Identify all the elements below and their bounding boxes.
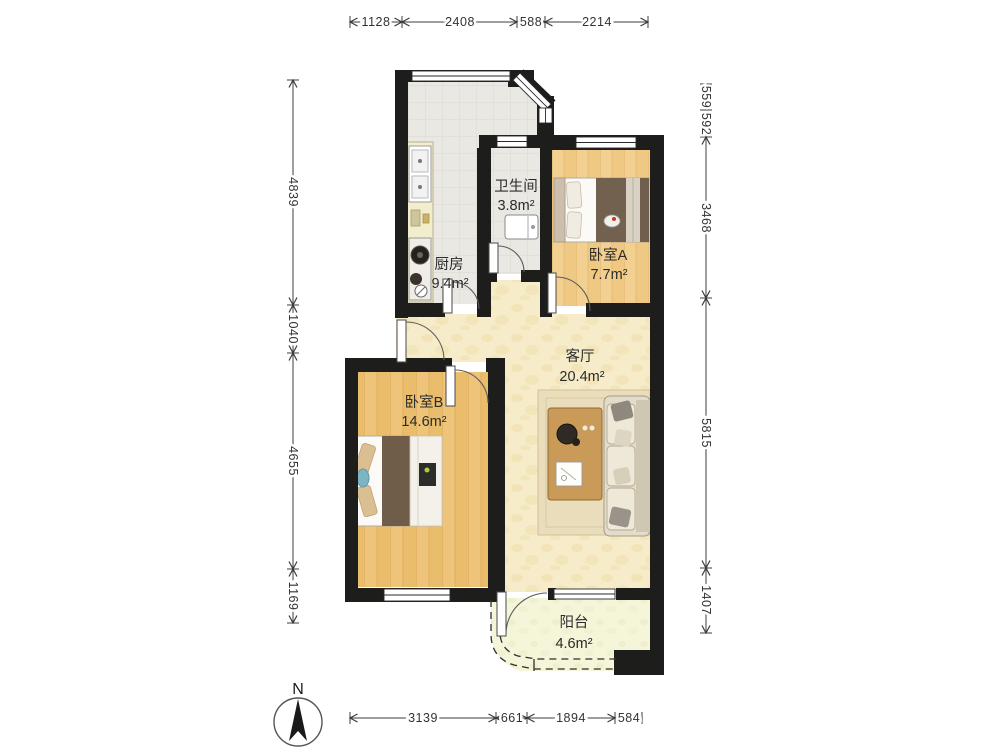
floor-plan-page: 卫生间 3.8m² 厨房 9.4m² 卧室A 7.7m² 客厅 20.4m² 卧… [0, 0, 1000, 750]
dim-top-3: 588 [520, 15, 542, 29]
living-label: 客厅 [566, 348, 595, 365]
dimensions-right: 559 592 3468 5815 1407 [699, 84, 713, 633]
dim-right-1: 559 [699, 86, 713, 108]
north-arrow-icon [289, 699, 307, 741]
dim-left-3: 4655 [286, 446, 300, 476]
dim-left-1: 4839 [286, 177, 300, 207]
bedroom-b-label: 卧室B [405, 394, 444, 411]
kitchen-label: 厨房 [435, 256, 464, 273]
north-label: N [292, 681, 304, 698]
dim-bottom-4: 584 [618, 711, 640, 725]
bedroom-a-label: 卧室A [589, 247, 628, 264]
bathroom-label: 卫生间 [494, 178, 538, 195]
dim-right-5: 1407 [699, 585, 713, 615]
dim-top-4: 2214 [582, 15, 612, 29]
dim-bottom-2: 661 [501, 711, 523, 725]
balcony-label: 阳台 [560, 614, 589, 631]
bedroom-b-bed [346, 436, 442, 526]
dimensions-bottom: 3139 661 1894 584 [350, 711, 642, 725]
bathroom-area: 3.8m² [497, 198, 534, 214]
dim-top-1: 1128 [362, 15, 391, 29]
bedroom-a-bed [554, 178, 649, 242]
dimensions-top: 1128 2408 588 2214 [350, 15, 648, 29]
compass-north-indicator: N [274, 681, 322, 746]
hall-floor [396, 314, 508, 362]
bedroom-b-area: 14.6m² [401, 414, 446, 430]
bedroom-a-area: 7.7m² [590, 267, 627, 283]
dim-left-4: 1169 [286, 582, 300, 611]
dim-bottom-3: 1894 [556, 711, 586, 725]
coffee-table [548, 408, 602, 500]
washing-machine [505, 215, 538, 239]
dimensions-left: 4839 1040 4655 1169 [286, 80, 300, 623]
dim-left-2: 1040 [286, 314, 300, 344]
dim-top-2: 2408 [445, 15, 475, 29]
balcony-area: 4.6m² [555, 636, 592, 652]
kitchen-area: 9.4m² [431, 276, 468, 292]
sofa [604, 396, 650, 536]
dim-bottom-1: 3139 [408, 711, 438, 725]
dim-right-2: 592 [699, 113, 713, 135]
dim-right-3: 3468 [699, 203, 713, 233]
kitchen-counter [407, 142, 433, 302]
floor-plan: 卫生间 3.8m² 厨房 9.4m² 卧室A 7.7m² 客厅 20.4m² 卧… [0, 0, 1000, 750]
living-area: 20.4m² [559, 369, 604, 385]
dim-right-4: 5815 [699, 418, 713, 448]
